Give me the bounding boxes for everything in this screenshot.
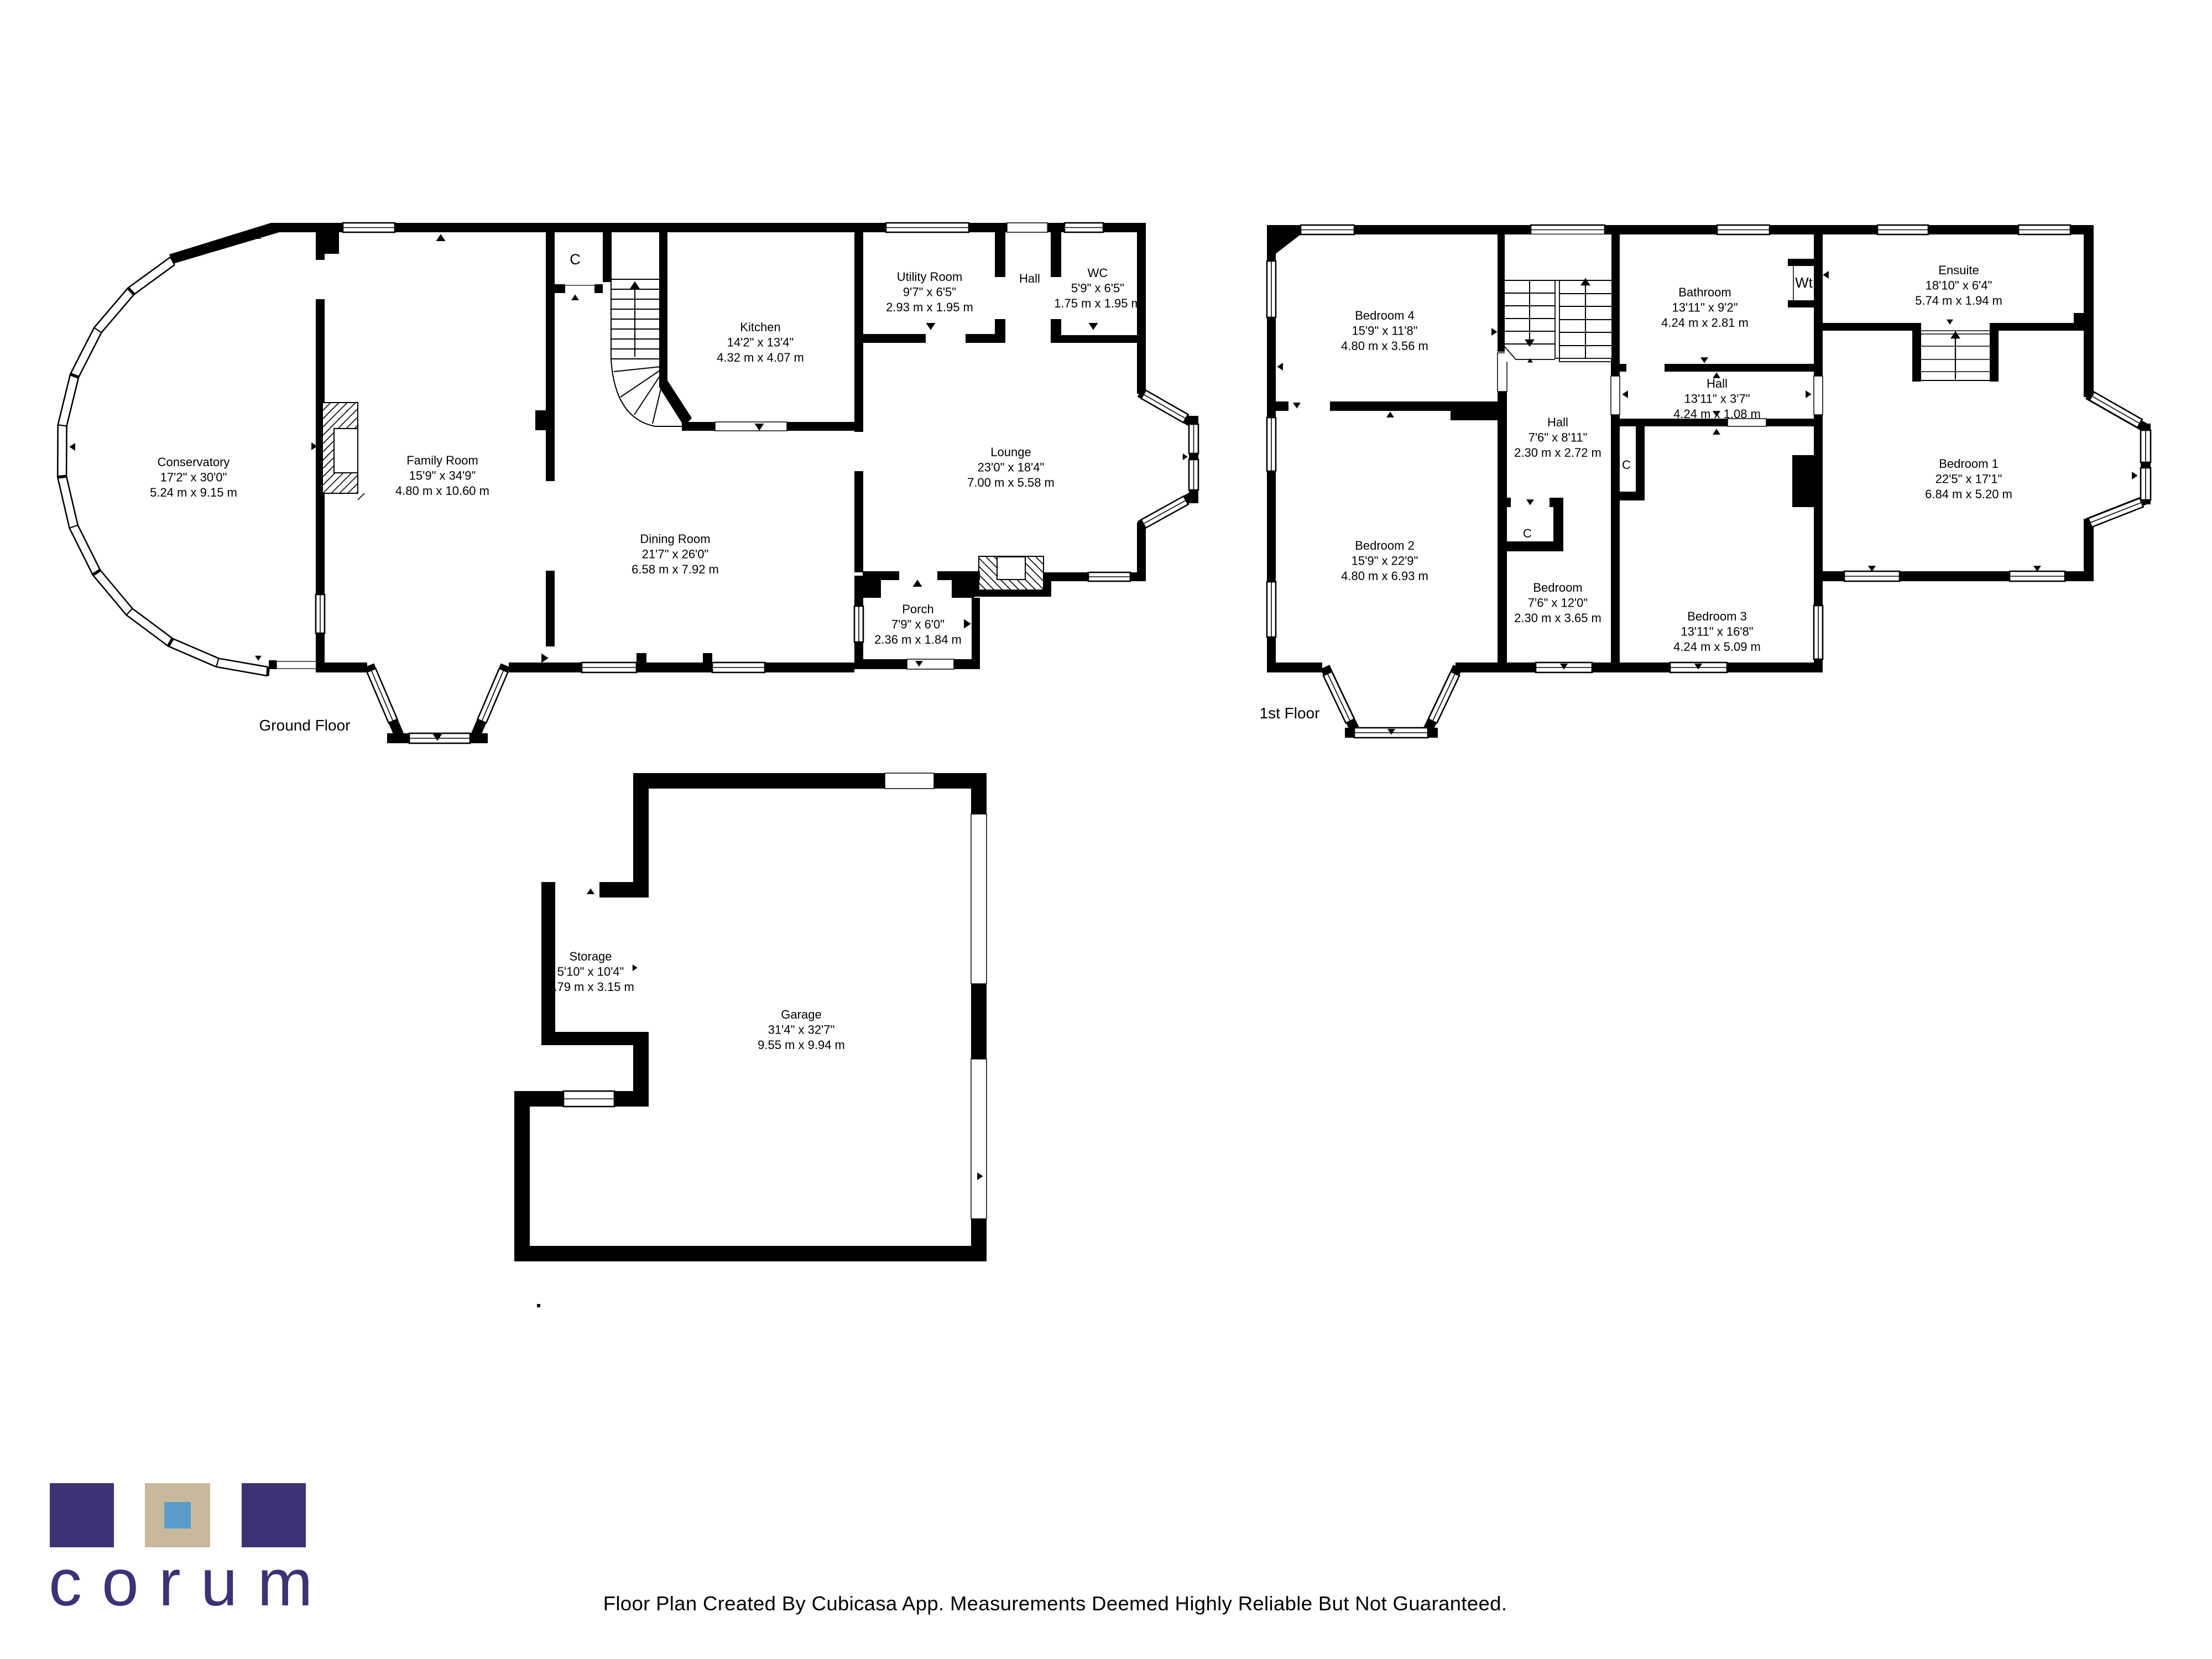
svg-text:17'2" x 30'0": 17'2" x 30'0" <box>160 471 227 484</box>
svg-text:Dining Room: Dining Room <box>640 532 710 546</box>
svg-text:4.24 m x 5.09 m: 4.24 m x 5.09 m <box>1673 640 1761 654</box>
svg-text:Hall: Hall <box>1707 377 1728 390</box>
svg-text:2.36 m x 1.84 m: 2.36 m x 1.84 m <box>874 633 962 646</box>
svg-text:7'6" x 8'11": 7'6" x 8'11" <box>1528 431 1588 445</box>
svg-text:Bedroom 2: Bedroom 2 <box>1355 539 1415 552</box>
svg-text:4.80 m x 3.56 m: 4.80 m x 3.56 m <box>1341 339 1428 353</box>
svg-text:WC: WC <box>1088 266 1108 280</box>
svg-text:15'9" x 34'9": 15'9" x 34'9" <box>409 469 476 483</box>
svg-text:18'10" x 6'4": 18'10" x 6'4" <box>1926 279 1992 293</box>
svg-text:5'9" x 6'5": 5'9" x 6'5" <box>1071 281 1124 295</box>
svg-text:Bedroom 1: Bedroom 1 <box>1939 457 1999 471</box>
svg-text:7'6" x 12'0": 7'6" x 12'0" <box>1528 596 1588 610</box>
svg-text:Hall: Hall <box>1547 415 1568 429</box>
svg-text:Utility Room: Utility Room <box>897 270 963 284</box>
svg-text:31'4" x 32'7": 31'4" x 32'7" <box>768 1023 835 1037</box>
svg-text:4.24 m x 2.81 m: 4.24 m x 2.81 m <box>1661 316 1749 330</box>
svg-text:6.84 m x 5.20 m: 6.84 m x 5.20 m <box>1925 487 2012 501</box>
svg-text:C: C <box>1523 526 1532 540</box>
svg-text:2.93 m x 1.95 m: 2.93 m x 1.95 m <box>886 300 973 314</box>
svg-text:1st Floor: 1st Floor <box>1260 705 1320 722</box>
svg-text:1.75 m x 1.95 m: 1.75 m x 1.95 m <box>1054 296 1141 310</box>
svg-text:2.30 m x 2.72 m: 2.30 m x 2.72 m <box>1514 446 1601 460</box>
svg-text:Ensuite: Ensuite <box>1938 263 1979 277</box>
svg-text:4.32 m x 4.07 m: 4.32 m x 4.07 m <box>717 351 804 364</box>
svg-text:7'9" x 6'0": 7'9" x 6'0" <box>891 618 945 632</box>
svg-text:6.58 m x 7.92 m: 6.58 m x 7.92 m <box>632 562 719 576</box>
svg-text:Family Room: Family Room <box>406 453 478 467</box>
svg-text:7.00 m x 5.58 m: 7.00 m x 5.58 m <box>967 476 1055 489</box>
svg-text:corum: corum <box>49 1546 332 1620</box>
svg-text:13'11" x 16'8": 13'11" x 16'8" <box>1681 625 1753 639</box>
svg-text:Kitchen: Kitchen <box>740 320 780 334</box>
svg-text:5.74 m x 1.94 m: 5.74 m x 1.94 m <box>1915 294 2002 307</box>
svg-text:C: C <box>570 251 581 268</box>
svg-text:22'5" x 17'1": 22'5" x 17'1" <box>1936 472 2002 486</box>
svg-text:2.30 m x 3.65 m: 2.30 m x 3.65 m <box>1514 611 1601 625</box>
svg-text:Bedroom 3: Bedroom 3 <box>1687 609 1747 623</box>
svg-text:5.24 m x 9.15 m: 5.24 m x 9.15 m <box>150 486 237 499</box>
svg-text:4.80 m x 10.60 m: 4.80 m x 10.60 m <box>395 484 489 498</box>
svg-text:5'10" x 10'4": 5'10" x 10'4" <box>557 965 624 979</box>
svg-text:1.79 m x 3.15 m: 1.79 m x 3.15 m <box>547 980 634 994</box>
svg-text:15'9" x 22'9": 15'9" x 22'9" <box>1352 554 1418 568</box>
svg-text:Storage: Storage <box>569 950 612 963</box>
svg-text:Bedroom 4: Bedroom 4 <box>1355 309 1415 322</box>
svg-text:Garage: Garage <box>781 1008 821 1021</box>
svg-text:4.24 m x 1.08 m: 4.24 m x 1.08 m <box>1673 407 1761 421</box>
svg-text:Hall: Hall <box>1019 272 1040 285</box>
svg-text:15'9" x 11'8": 15'9" x 11'8" <box>1352 324 1417 338</box>
svg-text:Porch: Porch <box>902 602 933 616</box>
svg-text:Lounge: Lounge <box>990 445 1031 459</box>
svg-text:Conservatory: Conservatory <box>158 455 230 469</box>
svg-text:13'11" x 3'7": 13'11" x 3'7" <box>1684 392 1750 406</box>
svg-text:Wt: Wt <box>1795 274 1813 291</box>
svg-text:Bathroom: Bathroom <box>1678 285 1731 299</box>
svg-text:14'2" x 13'4": 14'2" x 13'4" <box>727 336 794 349</box>
svg-text:9'7" x 6'5": 9'7" x 6'5" <box>903 285 956 299</box>
svg-text:13'11" x 9'2": 13'11" x 9'2" <box>1672 301 1738 315</box>
svg-text:9.55 m x 9.94 m: 9.55 m x 9.94 m <box>758 1038 845 1052</box>
svg-text:Bedroom: Bedroom <box>1533 581 1582 594</box>
svg-text:Floor Plan Created By Cubicasa: Floor Plan Created By Cubicasa App. Meas… <box>603 1592 1507 1615</box>
svg-text:Ground Floor: Ground Floor <box>259 717 351 734</box>
svg-text:C: C <box>1622 458 1631 472</box>
svg-text:21'7" x 26'0": 21'7" x 26'0" <box>642 547 709 561</box>
svg-text:4.80 m x 6.93 m: 4.80 m x 6.93 m <box>1341 569 1428 583</box>
svg-text:23'0" x 18'4": 23'0" x 18'4" <box>978 461 1045 474</box>
